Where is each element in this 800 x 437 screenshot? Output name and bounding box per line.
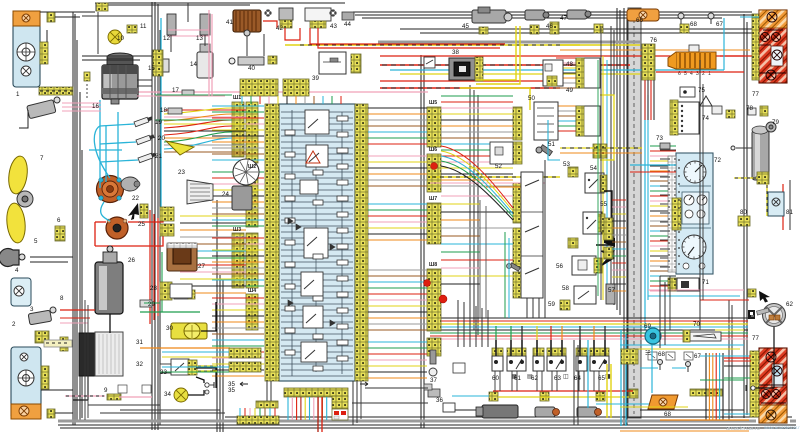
svg-text:4: 4 bbox=[15, 267, 19, 274]
svg-text:30: 30 bbox=[166, 325, 173, 332]
svg-text:59: 59 bbox=[548, 301, 555, 308]
svg-text:70: 70 bbox=[693, 321, 700, 328]
svg-text:78: 78 bbox=[746, 105, 753, 112]
svg-text:5: 5 bbox=[34, 238, 38, 245]
svg-text:72: 72 bbox=[714, 157, 721, 164]
svg-text:7: 7 bbox=[40, 155, 44, 162]
svg-text:24: 24 bbox=[222, 191, 229, 198]
svg-text:68: 68 bbox=[664, 411, 671, 418]
svg-text:Ш8: Ш8 bbox=[429, 262, 437, 268]
svg-text:62: 62 bbox=[531, 375, 538, 382]
svg-text:◨: ◨ bbox=[605, 374, 611, 380]
svg-text:53: 53 bbox=[563, 161, 570, 168]
svg-text:22: 22 bbox=[132, 195, 139, 202]
svg-text:34: 34 bbox=[164, 391, 171, 398]
svg-text:33: 33 bbox=[160, 369, 167, 376]
svg-text:58: 58 bbox=[562, 285, 569, 292]
svg-text:14: 14 bbox=[190, 61, 197, 68]
svg-text:69: 69 bbox=[644, 323, 651, 330]
svg-text:12: 12 bbox=[163, 35, 170, 42]
svg-text:44: 44 bbox=[344, 21, 351, 28]
svg-text:48: 48 bbox=[566, 61, 573, 68]
svg-text:26: 26 bbox=[128, 257, 135, 264]
svg-text:35: 35 bbox=[228, 387, 235, 394]
svg-text:29: 29 bbox=[148, 301, 155, 308]
svg-text:50: 50 bbox=[528, 95, 535, 102]
svg-text:74: 74 bbox=[702, 115, 709, 122]
svg-text:Ш7: Ш7 bbox=[429, 196, 437, 202]
svg-text:3: 3 bbox=[30, 306, 34, 313]
svg-text:☵: ☵ bbox=[645, 350, 650, 357]
svg-text:amastercar.ru: amastercar.ru bbox=[726, 426, 760, 432]
svg-text:9: 9 bbox=[104, 387, 108, 394]
svg-text:21: 21 bbox=[155, 153, 162, 160]
svg-text:67: 67 bbox=[694, 353, 701, 360]
svg-text:52: 52 bbox=[495, 163, 502, 170]
svg-text:54: 54 bbox=[590, 165, 597, 172]
svg-text:23: 23 bbox=[178, 169, 185, 176]
svg-text:1: 1 bbox=[16, 91, 20, 98]
svg-text:66: 66 bbox=[636, 17, 643, 24]
svg-text:◫: ◫ bbox=[563, 374, 569, 380]
svg-text:8: 8 bbox=[60, 295, 64, 302]
svg-text:42: 42 bbox=[276, 25, 283, 32]
svg-text:11: 11 bbox=[140, 23, 147, 30]
svg-text:63: 63 bbox=[554, 375, 561, 382]
svg-text:17: 17 bbox=[172, 87, 179, 94]
svg-text:71: 71 bbox=[702, 279, 709, 286]
svg-text:77: 77 bbox=[752, 91, 759, 98]
svg-text:79: 79 bbox=[772, 119, 779, 126]
svg-text:Ш1: Ш1 bbox=[233, 95, 241, 101]
svg-text:6: 6 bbox=[57, 217, 61, 224]
svg-text:77: 77 bbox=[752, 335, 759, 342]
svg-text:Ш4: Ш4 bbox=[248, 288, 256, 294]
svg-text:25: 25 bbox=[138, 221, 145, 228]
svg-text:57: 57 bbox=[608, 287, 615, 294]
svg-text:27: 27 bbox=[198, 263, 205, 270]
svg-text:Ш6: Ш6 bbox=[429, 147, 437, 153]
svg-text:67: 67 bbox=[716, 21, 723, 28]
svg-text:47: 47 bbox=[560, 15, 567, 22]
svg-text:41: 41 bbox=[226, 19, 233, 26]
svg-text:www.amastercar.ru: www.amastercar.ru bbox=[764, 425, 800, 430]
svg-text:37: 37 bbox=[430, 377, 437, 384]
svg-text:68: 68 bbox=[690, 21, 697, 28]
svg-text:20: 20 bbox=[158, 135, 165, 142]
svg-text:13: 13 bbox=[196, 35, 203, 42]
svg-text:38: 38 bbox=[452, 49, 459, 56]
svg-text:10: 10 bbox=[117, 35, 124, 42]
svg-text:36: 36 bbox=[436, 397, 443, 404]
svg-text:51: 51 bbox=[548, 141, 555, 148]
svg-text:40: 40 bbox=[248, 65, 255, 72]
svg-text:81: 81 bbox=[786, 209, 793, 216]
svg-text:56: 56 bbox=[556, 263, 563, 270]
svg-text:31: 31 bbox=[136, 339, 143, 346]
svg-text:75: 75 bbox=[698, 87, 705, 94]
svg-text:Ш2: Ш2 bbox=[248, 164, 256, 170]
svg-text:61: 61 bbox=[514, 375, 521, 382]
svg-text:73: 73 bbox=[656, 135, 663, 142]
svg-text:Ш5: Ш5 bbox=[429, 100, 437, 106]
svg-text:32: 32 bbox=[136, 361, 143, 368]
svg-text:49: 49 bbox=[566, 87, 573, 94]
svg-text:64: 64 bbox=[574, 375, 581, 382]
svg-text:28: 28 bbox=[150, 285, 157, 292]
svg-text:60: 60 bbox=[492, 375, 499, 382]
svg-text:65: 65 bbox=[598, 375, 605, 382]
svg-text:2: 2 bbox=[12, 321, 16, 328]
svg-text:46: 46 bbox=[546, 23, 553, 30]
svg-text:55: 55 bbox=[600, 201, 607, 208]
svg-text:18: 18 bbox=[160, 107, 167, 114]
svg-text:62: 62 bbox=[786, 301, 793, 308]
svg-text:76: 76 bbox=[650, 37, 657, 44]
svg-text:15: 15 bbox=[148, 65, 155, 72]
svg-text:45: 45 bbox=[462, 23, 469, 30]
svg-text:43: 43 bbox=[330, 23, 337, 30]
svg-text:39: 39 bbox=[312, 75, 319, 82]
svg-text:68: 68 bbox=[658, 351, 665, 358]
svg-text:Ш3: Ш3 bbox=[233, 227, 241, 233]
svg-text:19: 19 bbox=[155, 119, 162, 126]
svg-text:80: 80 bbox=[740, 209, 747, 216]
svg-text:16: 16 bbox=[92, 103, 99, 110]
